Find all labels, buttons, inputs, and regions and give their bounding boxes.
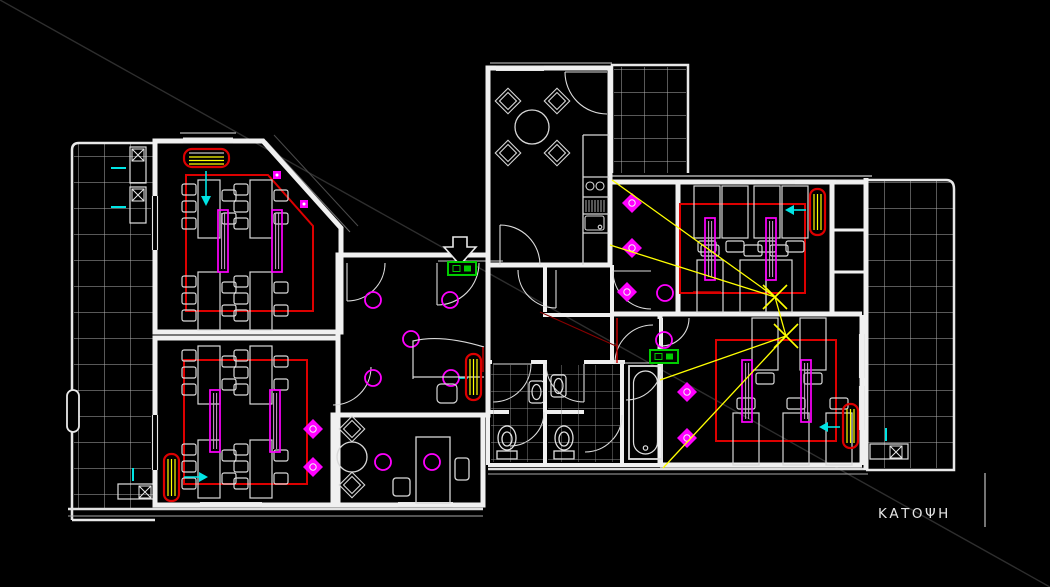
wall-notch xyxy=(67,390,79,432)
balcony-top-right xyxy=(612,65,688,173)
drawing-title-label: ΚΑΤΟΨΗ xyxy=(878,506,951,522)
distribution-board-icon xyxy=(448,262,476,275)
distribution-board-icon xyxy=(650,350,678,363)
floor-plan-canvas[interactable]: ΚΑΤΟΨΗ xyxy=(0,0,1050,587)
cad-drawing-stage: ΚΑΤΟΨΗ xyxy=(0,0,1050,587)
drainer-icon xyxy=(586,200,604,212)
balcony-right xyxy=(866,180,954,470)
balcony-left xyxy=(67,143,155,520)
